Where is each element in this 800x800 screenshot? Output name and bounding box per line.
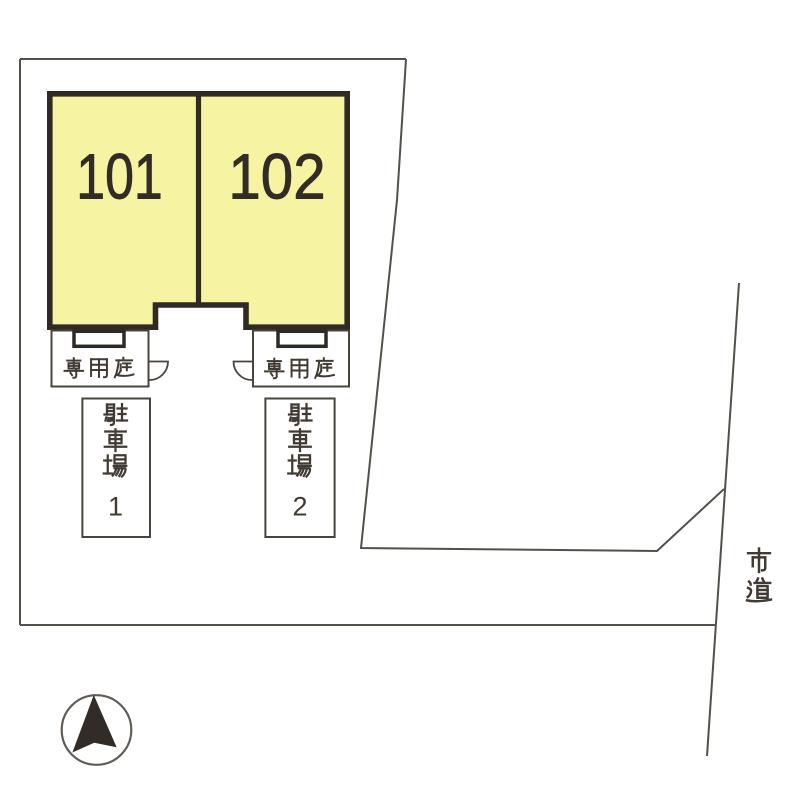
- svg-text:102: 102: [228, 141, 325, 212]
- svg-text:2: 2: [292, 492, 307, 522]
- svg-text:101: 101: [76, 141, 162, 212]
- svg-text:1: 1: [108, 492, 123, 522]
